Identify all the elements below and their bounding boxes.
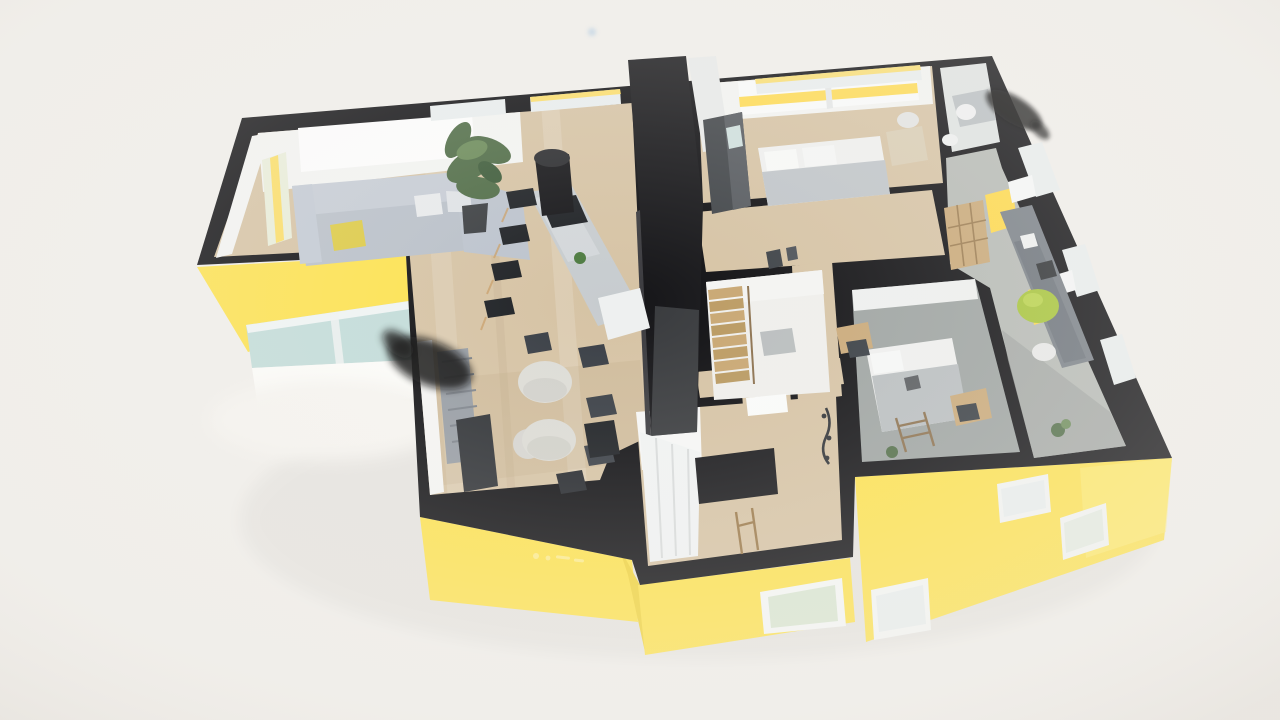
floorplan-3d-render (0, 0, 1280, 720)
floorplan-render-stage (0, 0, 1280, 720)
vignette-overlay (0, 0, 1280, 720)
